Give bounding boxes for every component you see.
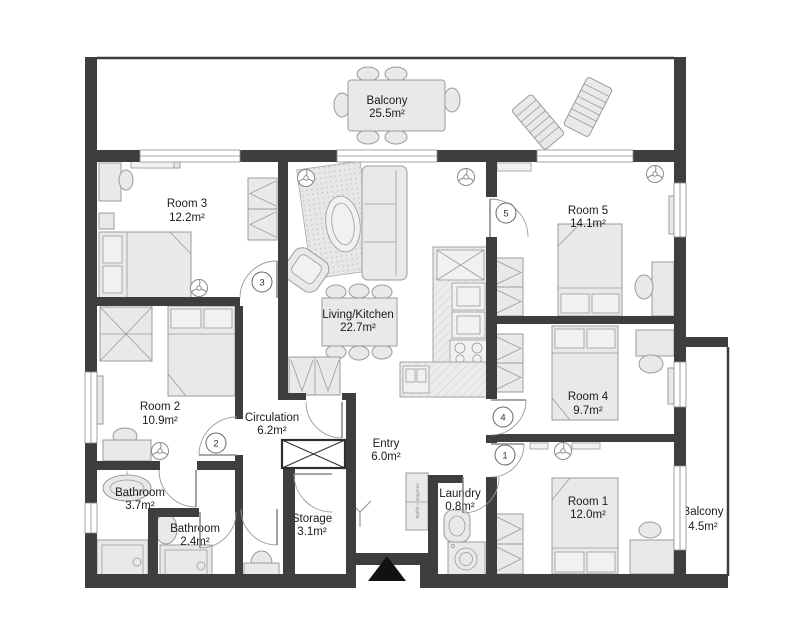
- radiator: [97, 376, 103, 424]
- sun-lounger: [563, 77, 612, 138]
- room-label: Balcony: [367, 95, 408, 107]
- pillow: [561, 294, 589, 313]
- pillow: [103, 236, 122, 263]
- pillow: [587, 552, 615, 572]
- room-label: Bathroom: [115, 487, 165, 499]
- living-kitchen: Living/Kitchen 22.7m²: [279, 161, 487, 397]
- room-area: 4.5m²: [688, 521, 718, 533]
- room-area: 12.0m²: [570, 509, 606, 521]
- desk-chair: [639, 355, 663, 373]
- room-3: Room 3 12.2m²: [99, 161, 277, 298]
- shelf: [572, 443, 600, 449]
- door-circulation: [306, 402, 342, 438]
- desk: [636, 330, 674, 356]
- room-label: Balcony: [683, 506, 724, 518]
- door-number: 4: [500, 413, 505, 424]
- circulation: Circulation 6.2m²: [245, 412, 299, 437]
- room-area: 14.1m²: [570, 218, 606, 230]
- sofa: [362, 166, 407, 280]
- room-label: Laundry: [439, 488, 481, 500]
- room-label: Circulation: [245, 412, 299, 424]
- door-number: 3: [259, 278, 264, 289]
- ceiling-fan-icon: [298, 170, 315, 187]
- storage: Storage 3.1m²: [292, 513, 332, 538]
- room-4: Room 4 9.7m²: [495, 326, 674, 420]
- room-area: 22.7m²: [340, 322, 376, 334]
- room-label: Room 5: [568, 205, 608, 217]
- room-label: Entry: [373, 438, 400, 450]
- room-label: Living/Kitchen: [322, 309, 394, 321]
- laundry: Laundry 0.8m²: [439, 488, 485, 576]
- room-area: 6.2m²: [257, 425, 287, 437]
- sun-lounger: [511, 94, 564, 151]
- room-label: Room 2: [140, 401, 180, 413]
- room-area: 9.7m²: [573, 405, 603, 417]
- dining-chair: [372, 345, 392, 359]
- desk-chair: [119, 170, 133, 190]
- toilet-bowl: [251, 551, 272, 563]
- room-label: Storage: [292, 513, 332, 525]
- shaft: [282, 440, 345, 468]
- room-area: 2.4m²: [180, 536, 210, 548]
- room-1: Room 1 12.0m²: [495, 443, 674, 575]
- door-storage: [294, 474, 332, 512]
- pillow: [103, 266, 122, 293]
- room-label: Room 3: [167, 198, 207, 210]
- room-area: 3.1m²: [297, 526, 327, 538]
- radiator: [668, 368, 674, 404]
- water-heater: [444, 510, 470, 542]
- dining-chair: [349, 284, 369, 298]
- room-area: 10.9m²: [142, 415, 178, 427]
- balcony-chair: [444, 88, 460, 112]
- balcony-chair: [357, 130, 379, 144]
- dining-chair: [372, 285, 392, 299]
- room-area: 25.5m²: [369, 108, 405, 120]
- ceiling-fan-icon: [191, 280, 208, 297]
- entry: Buffet + étagères Entry 6.0m²: [349, 438, 428, 530]
- desk: [103, 440, 151, 461]
- ceiling-fan-icon: [555, 443, 572, 460]
- balcony-chair: [385, 67, 407, 81]
- dining-chair: [349, 346, 369, 360]
- pillow: [171, 309, 201, 328]
- desk: [630, 540, 674, 574]
- room-area: 0.8m²: [445, 501, 475, 513]
- balcony-right: Balcony 4.5m²: [683, 347, 728, 576]
- balcony-top: Balcony 25.5m²: [97, 58, 674, 150]
- room-area: 6.0m²: [371, 451, 401, 463]
- door-wc: [241, 509, 277, 545]
- room-label: Bathroom: [170, 523, 220, 535]
- pillow: [592, 294, 619, 313]
- buffet-label: Buffet + étagères: [415, 483, 420, 519]
- floorplan: Balcony 25.5m² Room 3 12.2m²: [0, 0, 800, 632]
- pillow: [204, 309, 232, 328]
- door-number: 5: [503, 209, 508, 220]
- desk: [652, 262, 674, 316]
- door-number: 2: [213, 439, 218, 450]
- ceiling-fan-icon: [647, 166, 664, 183]
- desk-chair: [635, 275, 653, 299]
- nightstand: [99, 213, 114, 229]
- shelf: [497, 163, 531, 171]
- pillow: [555, 552, 584, 572]
- shelf: [530, 443, 548, 449]
- desk-chair: [639, 522, 661, 538]
- pillow: [555, 329, 584, 348]
- balcony-chair: [357, 67, 379, 81]
- dining-chair: [326, 285, 346, 299]
- ceiling-fan-icon: [458, 169, 475, 186]
- door-number: 1: [502, 451, 507, 462]
- room-label: Room 1: [568, 496, 608, 508]
- floorplan-svg: Balcony 25.5m² Room 3 12.2m²: [0, 0, 800, 632]
- balcony-chair: [385, 130, 407, 144]
- pillow: [587, 329, 615, 348]
- room-area: 12.2m²: [169, 212, 205, 224]
- room-5: Room 5 14.1m²: [495, 163, 675, 316]
- ceiling-fan-icon: [152, 443, 169, 460]
- desk: [99, 163, 121, 201]
- kitchen-sink: [403, 366, 429, 393]
- room-label: Room 4: [568, 391, 609, 403]
